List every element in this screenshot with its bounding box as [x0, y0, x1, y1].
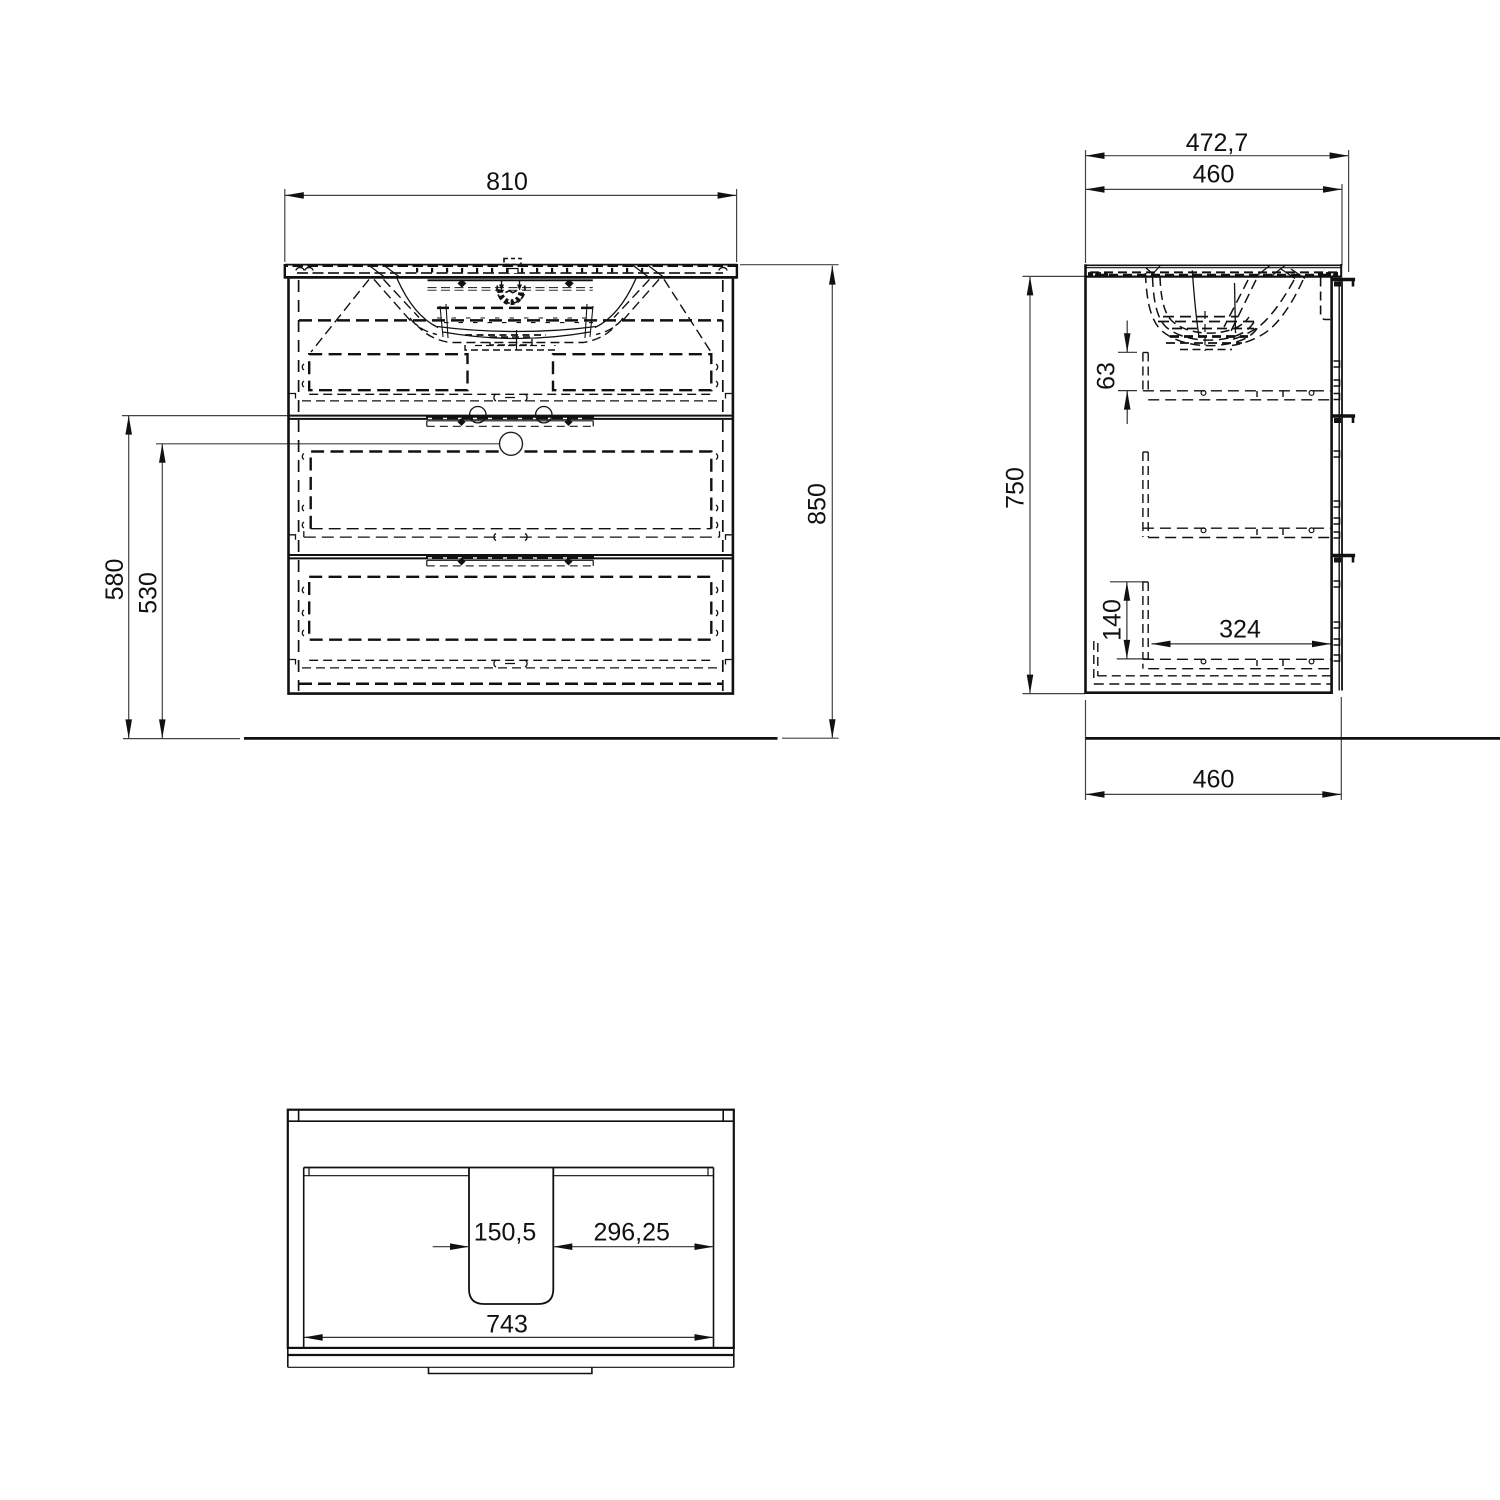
svg-text:472,7: 472,7 — [1186, 129, 1249, 157]
svg-text:460: 460 — [1193, 766, 1235, 794]
svg-text:743: 743 — [486, 1311, 528, 1339]
svg-text:296,25: 296,25 — [593, 1219, 669, 1247]
svg-text:140: 140 — [1099, 599, 1127, 641]
svg-text:460: 460 — [1193, 161, 1235, 189]
svg-text:63: 63 — [1093, 362, 1121, 390]
svg-text:150,5: 150,5 — [474, 1219, 537, 1247]
svg-text:850: 850 — [804, 483, 832, 525]
svg-text:530: 530 — [134, 572, 162, 614]
svg-text:580: 580 — [101, 559, 129, 601]
svg-text:810: 810 — [486, 168, 528, 196]
svg-text:324: 324 — [1219, 616, 1261, 644]
svg-text:750: 750 — [1002, 467, 1030, 509]
